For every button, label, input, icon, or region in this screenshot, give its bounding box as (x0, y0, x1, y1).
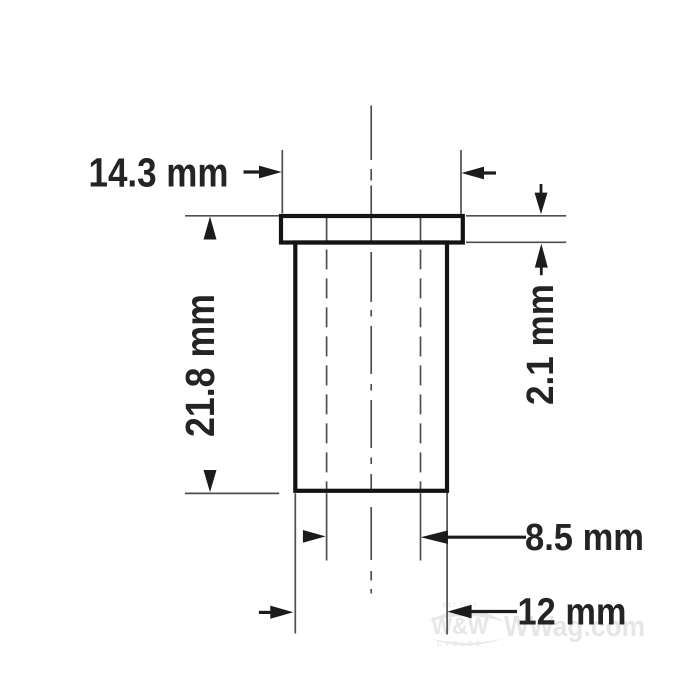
svg-text:14.3 mm: 14.3 mm (89, 150, 229, 196)
svg-text:2.1 mm: 2.1 mm (520, 284, 562, 405)
svg-text:12 mm: 12 mm (518, 591, 627, 633)
svg-text:8.5 mm: 8.5 mm (525, 517, 644, 559)
svg-text:21.8 mm: 21.8 mm (177, 294, 223, 437)
svg-text:CYCLES: CYCLES (437, 641, 483, 648)
svg-text:W&W: W&W (432, 613, 489, 640)
